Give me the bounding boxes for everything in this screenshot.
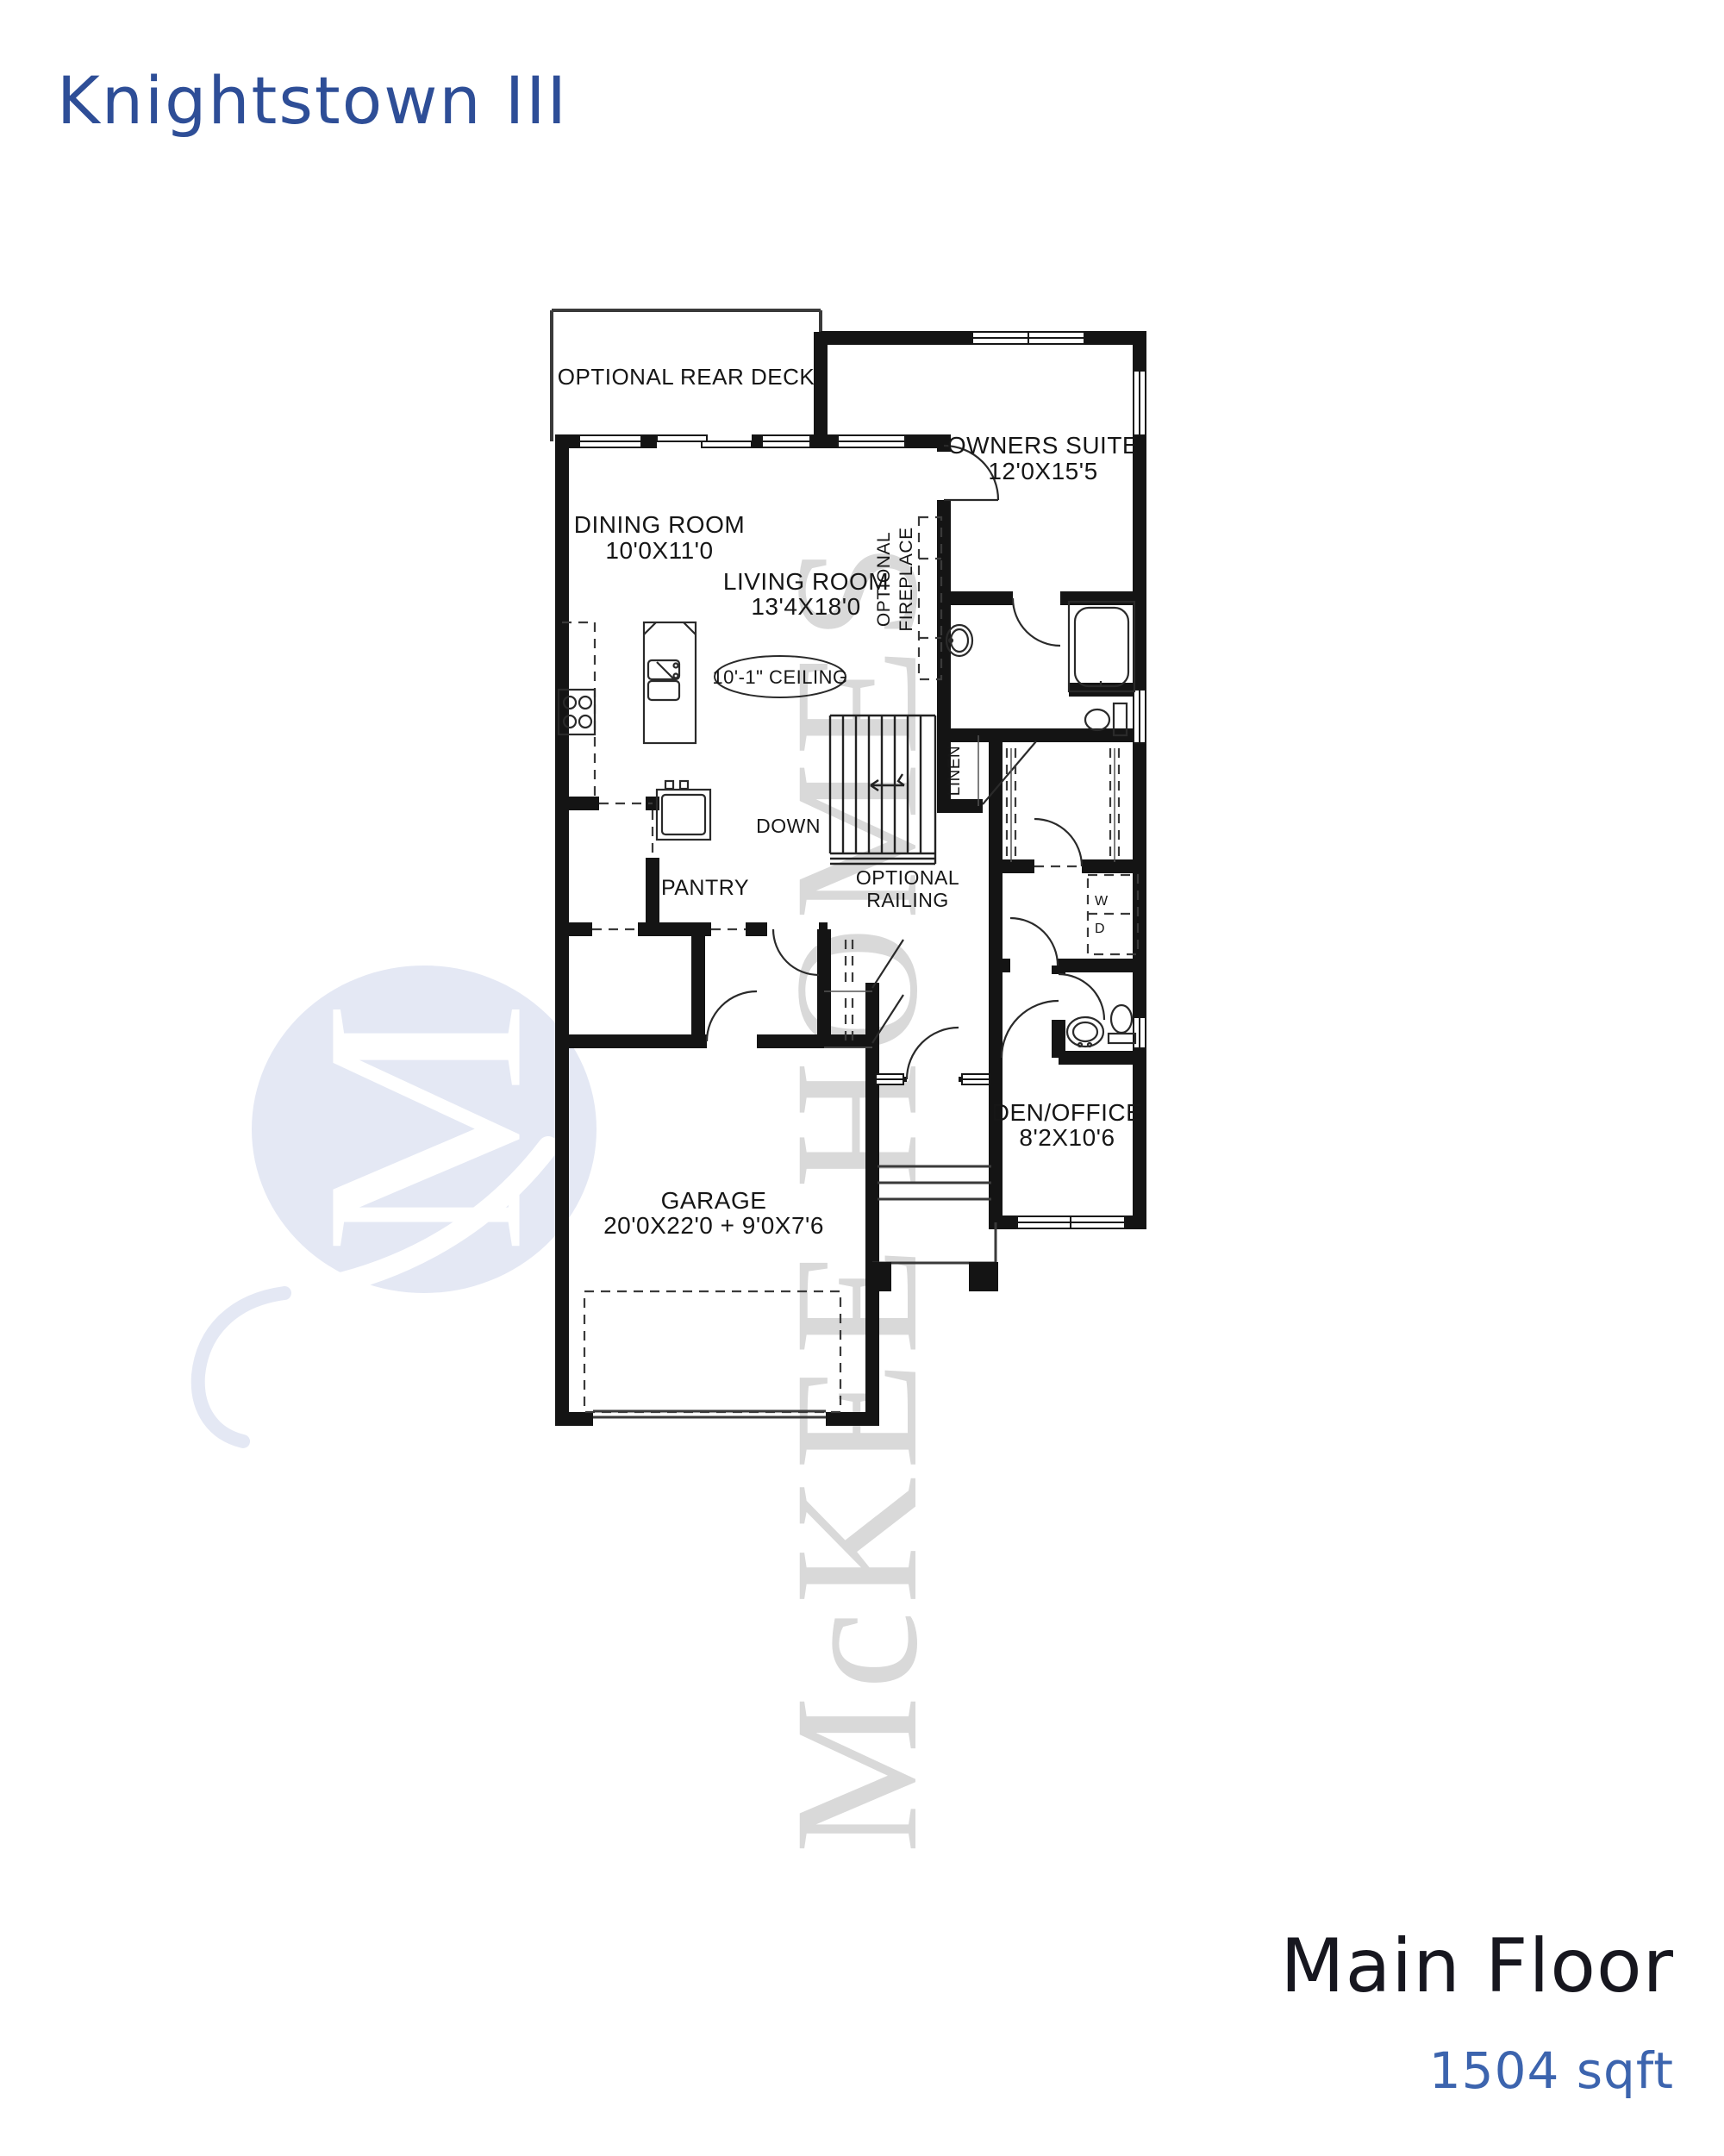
kitchen-sink-icon xyxy=(648,681,679,700)
slider-door-icon xyxy=(657,435,707,441)
den-label: DEN/OFFICE xyxy=(992,1099,1143,1126)
prep-sink-icon xyxy=(662,795,705,834)
washer-label: W xyxy=(1095,894,1109,909)
linen-label: LINEN xyxy=(946,746,964,796)
door-closet xyxy=(1034,819,1082,866)
watermark: M McKEE HOMES xyxy=(198,535,954,1853)
logo-letter: M xyxy=(267,1001,582,1253)
living-label: LIVING ROOM xyxy=(723,568,889,595)
living-dims: 13'4X18'0 xyxy=(751,593,860,620)
dining-label: DINING ROOM xyxy=(574,511,745,538)
powder-toilet-icon xyxy=(1111,1005,1132,1033)
den-dims: 8'2X10'6 xyxy=(1019,1124,1115,1151)
prep-sink-cabinet xyxy=(657,790,710,840)
owners-suite-dims: 12'0X15'5 xyxy=(988,458,1097,484)
garage-dims: 20'0X22'0 + 9'0X7'6 xyxy=(603,1212,824,1239)
fireplace-note-1: OPTIONAL xyxy=(874,532,894,627)
fireplace-note-2: FIREPLACE xyxy=(896,527,916,631)
bathtub-icon xyxy=(1069,602,1134,691)
dryer-label: D xyxy=(1095,922,1105,936)
door-bath xyxy=(1013,598,1060,646)
toilet-icon xyxy=(1085,709,1109,730)
door-den xyxy=(1002,1001,1059,1058)
stairs-down-label: DOWN xyxy=(756,815,821,837)
door-laundry xyxy=(1010,918,1058,966)
closet-rods xyxy=(1007,748,1119,862)
floor-area: 1504 sqft xyxy=(1280,2041,1674,2100)
door-garage-entry xyxy=(707,991,757,1041)
floor-plan-page: { "document": { "title": "Knightstown II… xyxy=(0,0,1724,2156)
door-powder xyxy=(1059,974,1104,1020)
railing-note-1: OPTIONAL xyxy=(856,866,959,889)
floor-plan-canvas: M McKEE HOMES xyxy=(0,0,1724,2156)
floor-name: Main Floor xyxy=(1280,1928,1674,2005)
railing-note-2: RAILING xyxy=(866,889,949,911)
deck-label: OPTIONAL REAR DECK xyxy=(558,364,815,390)
slider-door-icon xyxy=(702,441,752,447)
pantry-label: PANTRY xyxy=(661,876,749,900)
logo-swoosh-tail xyxy=(198,1293,284,1441)
garage-label: GARAGE xyxy=(661,1187,767,1214)
post xyxy=(969,1262,998,1291)
post xyxy=(872,1262,891,1291)
kitchen-island xyxy=(644,622,696,743)
footer: Main Floor 1504 sqft xyxy=(1280,1928,1674,2100)
faucet-icon xyxy=(657,662,674,679)
owners-suite-label: OWNERS SUITE xyxy=(947,432,1139,459)
dining-dims: 10'0X11'0 xyxy=(605,537,713,564)
ceiling-note: 10'-1" CEILING xyxy=(712,666,847,688)
